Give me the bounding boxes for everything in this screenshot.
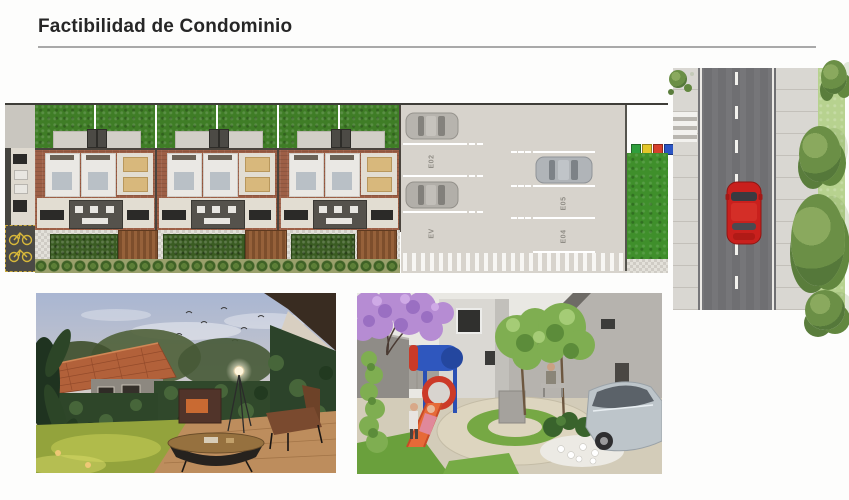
tree-icon (799, 126, 841, 182)
red-car (725, 180, 763, 246)
bicycles-icon (6, 226, 35, 271)
hedge (50, 234, 118, 261)
paver-strip (627, 259, 668, 273)
silver-car (586, 382, 662, 451)
wood-deck (118, 230, 158, 262)
dining-area (117, 153, 153, 195)
hedge (163, 234, 245, 261)
unit-module (279, 150, 400, 230)
garden-light (85, 462, 91, 468)
parking-space: E02 (403, 147, 461, 175)
shrub-row (35, 259, 400, 273)
side-unit (5, 148, 37, 225)
wood-deck (357, 230, 397, 262)
courtyard-patio-render (36, 293, 336, 473)
parking-space: E04 (533, 221, 595, 251)
planter (499, 391, 525, 423)
street-crosswalk (673, 112, 697, 142)
bedroom (45, 153, 80, 197)
hedge (291, 234, 355, 261)
bedroom (325, 153, 360, 197)
service-area (159, 198, 276, 228)
tree-icon (805, 290, 845, 330)
bike-parking (5, 225, 36, 272)
dining-area (239, 153, 275, 195)
left-path (5, 105, 35, 148)
parking-lot: E03 E02 E01 EV E06 E05 (401, 105, 627, 273)
parking-space: EV (403, 215, 461, 251)
outdoor-grill (179, 389, 221, 423)
parked-car (405, 111, 459, 141)
garden-strip (35, 105, 400, 148)
parking-space: E05 (533, 189, 595, 217)
unit-module (157, 150, 278, 230)
dining-area (361, 153, 397, 195)
service-area (281, 198, 398, 228)
street-top-view (673, 68, 845, 310)
site-plan: E03 E02 E01 EV E06 E05 (5, 103, 668, 273)
slide: Factibilidad de Condominio (0, 0, 849, 500)
playground-render (357, 293, 662, 474)
parked-car (535, 155, 593, 185)
bedroom (203, 153, 238, 197)
common-lawn (627, 153, 668, 259)
bedroom (167, 153, 202, 197)
bedroom (81, 153, 116, 197)
page-title: Factibilidad de Condominio (38, 16, 292, 38)
tree-icon (791, 194, 845, 286)
unit-module (35, 150, 156, 230)
tree-icon (821, 60, 847, 94)
bedroom (289, 153, 324, 197)
parked-car (405, 180, 459, 210)
service-area (37, 198, 154, 228)
crosswalk (403, 253, 625, 271)
sidewalk-left (673, 68, 698, 310)
garden-light (55, 450, 61, 456)
title-divider (38, 46, 816, 48)
tree-icon (669, 70, 687, 88)
road (698, 68, 776, 310)
